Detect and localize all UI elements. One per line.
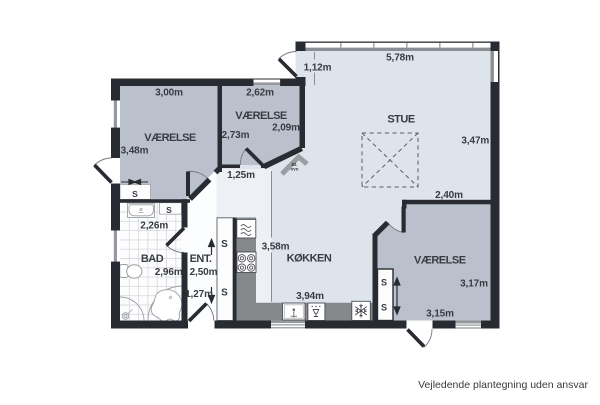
svg-text:S: S <box>132 189 138 199</box>
svg-text:2,96m: 2,96m <box>155 267 183 278</box>
svg-text:2,73m: 2,73m <box>222 130 250 141</box>
svg-text:3,48m: 3,48m <box>121 145 149 156</box>
svg-text:S: S <box>221 239 228 250</box>
svg-text:Vejledende plantegning uden an: Vejledende plantegning uden ansvar <box>418 379 588 391</box>
svg-text:3,17m: 3,17m <box>460 279 488 290</box>
svg-text:2,26m: 2,26m <box>140 221 168 232</box>
svg-text:3,58m: 3,58m <box>262 242 290 253</box>
svg-text:BAD: BAD <box>141 253 164 265</box>
svg-text:2,40m: 2,40m <box>435 190 463 201</box>
svg-text:3,00m: 3,00m <box>155 88 183 99</box>
svg-text:ovn: ovn <box>290 167 298 172</box>
svg-text:5,78m: 5,78m <box>386 53 414 64</box>
svg-text:ENT.: ENT. <box>190 253 212 265</box>
svg-text:2,62m: 2,62m <box>246 88 274 99</box>
svg-text:VÆRELSE: VÆRELSE <box>235 110 287 122</box>
svg-text:S: S <box>381 278 387 288</box>
svg-text:VÆRELSE: VÆRELSE <box>144 132 196 144</box>
svg-text:S: S <box>381 303 387 313</box>
svg-text:VÆRELSE: VÆRELSE <box>414 255 466 267</box>
svg-text:1,25m: 1,25m <box>227 170 255 181</box>
svg-text:KØKKEN: KØKKEN <box>287 253 332 265</box>
svg-text:3,47m: 3,47m <box>461 136 489 147</box>
svg-text:1,27m: 1,27m <box>185 289 213 300</box>
svg-text:2,09m: 2,09m <box>272 123 300 134</box>
svg-text:STUE: STUE <box>387 113 415 125</box>
svg-text:S: S <box>221 288 228 299</box>
svg-text:1,12m: 1,12m <box>304 63 332 74</box>
svg-text:S: S <box>166 205 172 215</box>
svg-text:2,50m: 2,50m <box>190 267 218 278</box>
svg-text:3,94m: 3,94m <box>296 291 324 302</box>
svg-text:3,15m: 3,15m <box>426 309 454 320</box>
